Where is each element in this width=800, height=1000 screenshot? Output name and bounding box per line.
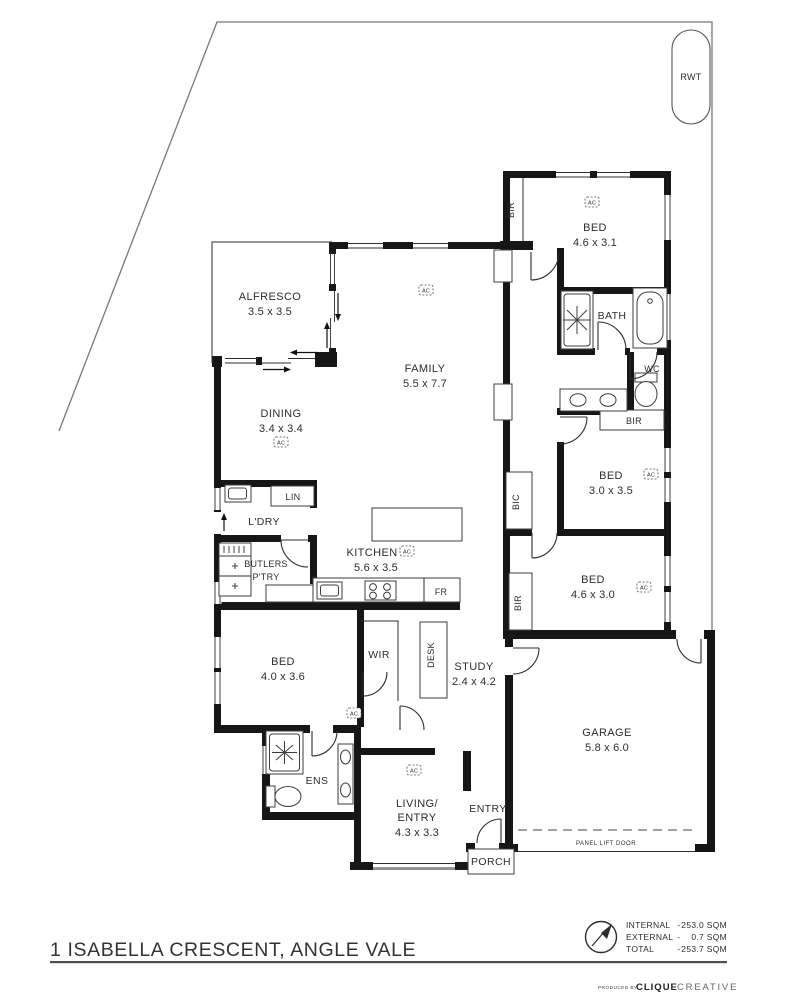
room-label-living-1: LIVING/ [396, 798, 438, 810]
floorplan-page: RWT [0, 0, 800, 1000]
label-bic: BIC [511, 494, 521, 510]
butlers-appliance-icon [219, 543, 251, 596]
produced-by-label: PRODUCED BY [598, 985, 638, 991]
room-label-ens: ENS [306, 775, 329, 787]
room-label-garage: GARAGE [582, 727, 631, 739]
area-label-external: EXTERNAL [626, 932, 673, 942]
label-fr: FR [435, 587, 448, 597]
ac-icon-master: AC [347, 708, 361, 718]
area-dash-total: - [677, 944, 680, 954]
ac-icon-family: AC [419, 285, 433, 295]
room-label-porch: PORCH [471, 856, 511, 868]
ac-icon-bed1: AC [585, 197, 599, 207]
svg-text:AC: AC [647, 473, 655, 479]
door-bed2 [560, 417, 587, 444]
door-garage-rear [677, 639, 701, 663]
brand-credit: PRODUCED BY CLIQUE CREATIVE [598, 982, 738, 993]
door-garage-internal [513, 648, 539, 674]
svg-text:AC: AC [403, 550, 411, 556]
area-dash-external: - [677, 932, 680, 942]
ens-vanity-icon [338, 744, 353, 804]
bathtub-icon [633, 288, 667, 348]
room-label-alfresco: ALFRESCO [239, 291, 302, 303]
svg-text:AC: AC [422, 289, 430, 295]
door-bath [598, 322, 626, 350]
brand-strong: CLIQUE [636, 982, 678, 993]
label-panel-lift-door: PANEL LIFT DOOR [576, 841, 636, 847]
room-dims-bed2: 3.0 x 3.5 [589, 485, 633, 497]
room-label-dining: DINING [261, 408, 302, 420]
ac-icon-bed2: AC [644, 469, 658, 479]
laundry-sink-icon [225, 485, 251, 502]
room-dims-garage: 5.8 x 6.0 [585, 742, 629, 754]
room-dims-bed3: 4.6 x 3.0 [571, 589, 615, 601]
address-title: 1 ISABELLA CRESCENT, ANGLE VALE [50, 939, 416, 961]
svg-text:AC: AC [350, 712, 358, 718]
ens-shower-icon [266, 731, 303, 774]
shower-icon [561, 291, 593, 349]
cooktop-icon [365, 581, 396, 600]
label-bir-bed3: BIR [513, 595, 523, 611]
room-label-kitchen: KITCHEN [346, 547, 397, 559]
room-label-bed1: BED [583, 222, 607, 234]
rainwater-tank-icon: RWT [672, 30, 710, 124]
room-label-family: FAMILY [405, 363, 446, 375]
ens-toilet-icon [266, 786, 301, 807]
area-label-internal: INTERNAL [626, 920, 670, 930]
area-value-internal: 253.0 SQM [681, 920, 727, 930]
floorplan-svg: RWT [0, 0, 800, 1000]
room-dims-study: 2.4 x 4.2 [452, 676, 496, 688]
room-label-bed2: BED [599, 470, 623, 482]
room-dims-family: 5.5 x 7.7 [403, 378, 447, 390]
room-dims-dining: 3.4 x 3.4 [259, 423, 303, 435]
svg-text:AC: AC [410, 769, 418, 775]
label-wir: WIR [368, 649, 390, 661]
room-dims-bed1: 4.6 x 3.1 [573, 237, 617, 249]
ac-icon-living: AC [407, 765, 421, 775]
area-dash-internal: - [677, 920, 680, 930]
room-label-study: STUDY [454, 661, 494, 673]
label-lin: LIN [286, 492, 301, 502]
svg-text:AC: AC [588, 201, 596, 207]
area-label-total: TOTAL [626, 944, 654, 954]
label-butlers-1: BUTLERS [244, 559, 288, 569]
svg-text:AC: AC [640, 586, 648, 592]
footer-divider [50, 961, 727, 963]
room-dims-alfresco: 3.5 x 3.5 [248, 306, 292, 318]
brand-light: CREATIVE [677, 982, 738, 993]
label-desk: DESK [426, 642, 436, 668]
label-bir-bed1: BIR [506, 202, 516, 218]
area-value-total: 253.7 SQM [681, 944, 727, 954]
room-dims-kitchen: 5.6 x 3.5 [354, 562, 398, 574]
rwt-label: RWT [680, 72, 701, 82]
footer: 1 ISABELLA CRESCENT, ANGLE VALE INTERNAL… [50, 920, 738, 993]
room-label-wc: WC [644, 364, 660, 374]
area-value-external: 0.7 SQM [691, 932, 727, 942]
label-bir-bed2: BIR [626, 416, 642, 426]
room-label-bath: BATH [598, 310, 627, 322]
room-label-master: BED [271, 656, 295, 668]
label-butlers-2: P'TRY [252, 572, 279, 582]
ac-icon-bed3: AC [637, 582, 651, 592]
door-bed3 [532, 533, 557, 558]
room-dims-master: 4.0 x 3.6 [261, 671, 305, 683]
vanity-icon [560, 389, 627, 411]
kitchen-sink-icon [317, 582, 342, 599]
ac-icon-dining: AC [274, 437, 288, 447]
north-compass-icon [586, 922, 617, 953]
room-label-living-2: ENTRY [397, 812, 436, 824]
room-label-entry: ENTRY [469, 803, 506, 815]
door-ens [312, 731, 337, 756]
area-table: INTERNAL - 253.0 SQM EXTERNAL - 0.7 SQM … [626, 920, 727, 954]
door-study [400, 706, 424, 730]
ac-icon-kitchen: AC [400, 546, 414, 556]
door-bed1 [531, 252, 559, 280]
label-ldry: L'DRY [248, 516, 280, 528]
room-label-bed3: BED [581, 574, 605, 586]
room-dims-living: 4.3 x 3.3 [395, 827, 439, 839]
svg-text:AC: AC [277, 441, 285, 447]
door-front [477, 819, 501, 843]
door-wir [363, 672, 387, 696]
